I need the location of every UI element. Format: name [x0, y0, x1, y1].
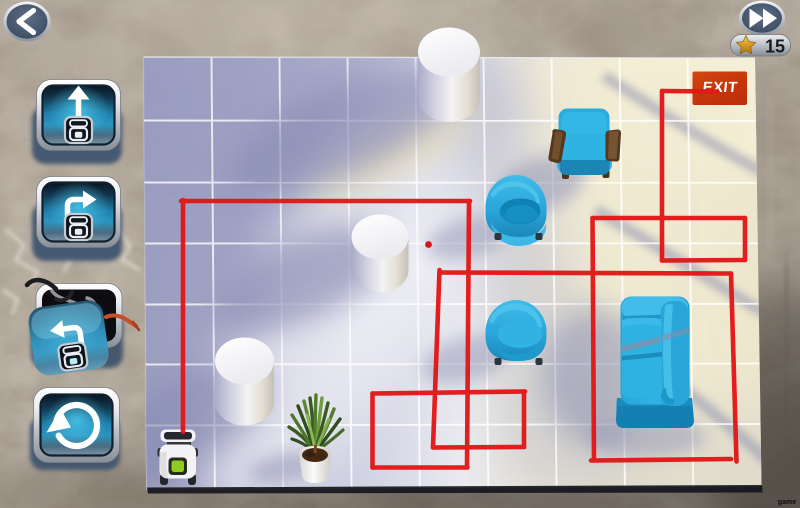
svg-text:15: 15 [765, 37, 785, 57]
svg-text:game: game [778, 499, 796, 506]
